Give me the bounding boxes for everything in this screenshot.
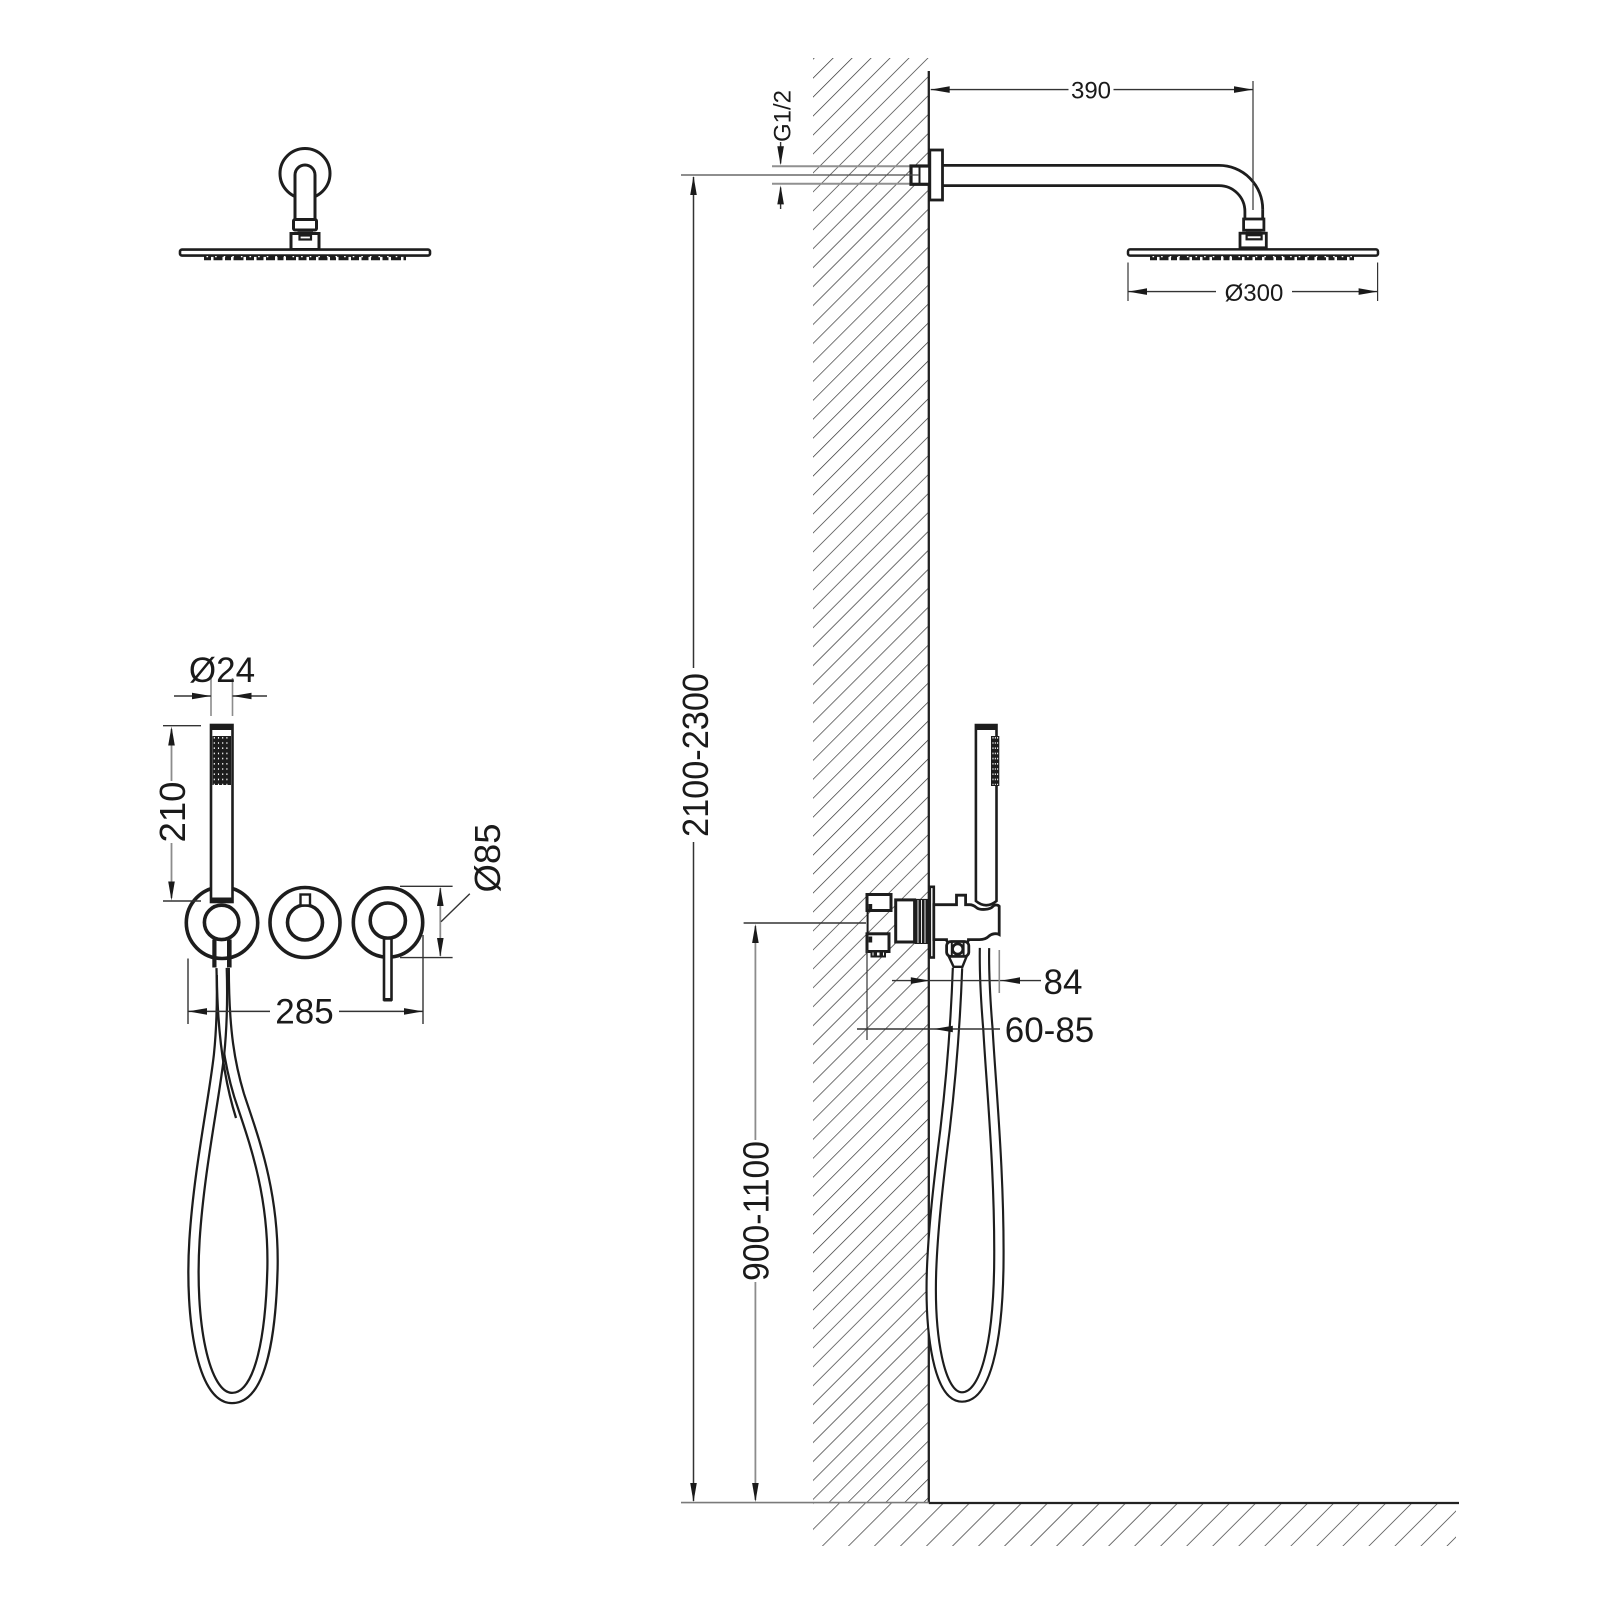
svg-text:285: 285 bbox=[275, 993, 333, 1032]
svg-text:390: 390 bbox=[1071, 77, 1111, 104]
svg-text:G1/2: G1/2 bbox=[770, 90, 797, 142]
svg-text:2100-2300: 2100-2300 bbox=[675, 673, 716, 837]
svg-text:84: 84 bbox=[1044, 963, 1083, 1002]
svg-text:Ø24: Ø24 bbox=[189, 651, 255, 690]
svg-text:210: 210 bbox=[152, 782, 193, 843]
svg-text:900-1100: 900-1100 bbox=[736, 1141, 777, 1281]
svg-text:Ø300: Ø300 bbox=[1225, 280, 1284, 307]
svg-text:60-85: 60-85 bbox=[1005, 1011, 1095, 1050]
svg-text:Ø85: Ø85 bbox=[467, 824, 508, 893]
